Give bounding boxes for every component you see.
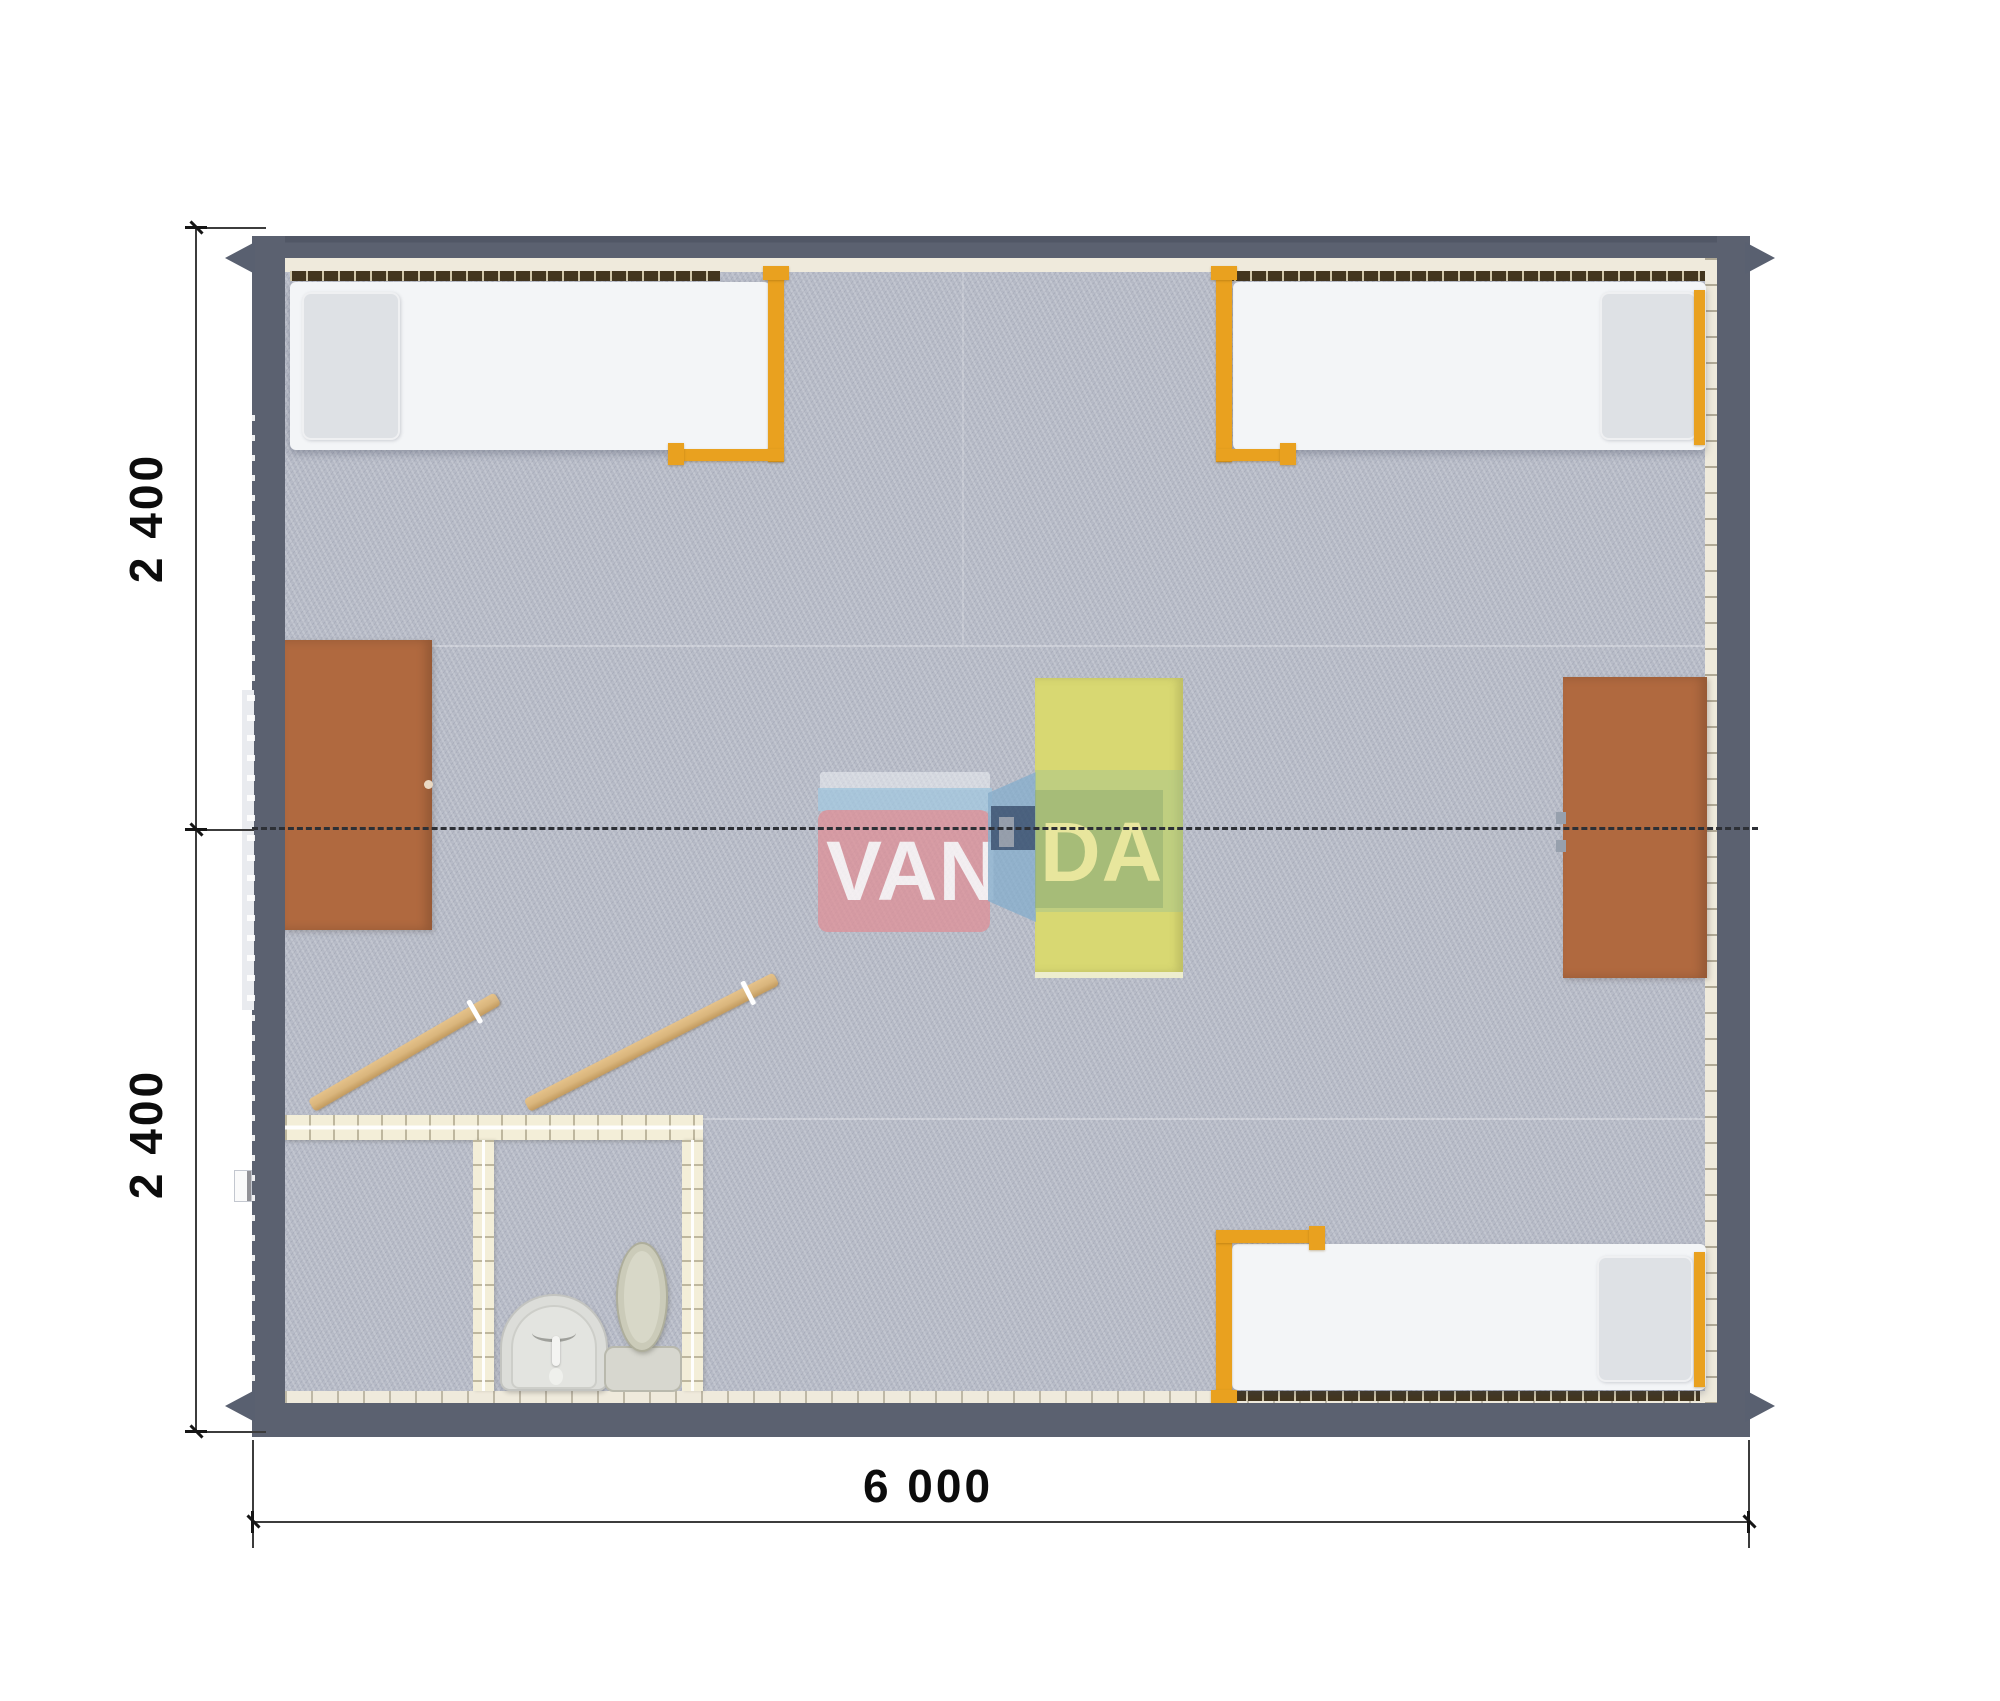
bed-frame-stub [668,443,684,465]
washbasin-faucet [552,1336,560,1366]
wall-left [252,236,285,1437]
wall-strip [1218,271,1705,281]
bathroom-wall-divider [473,1140,494,1391]
dimension-label-left-top: 2 400 [118,430,174,606]
bed-frame-bar [1216,1230,1232,1396]
corner-arrow-top-right [1745,242,1775,274]
desk-right-handle [1556,812,1566,824]
logo-navy-notch [999,817,1014,847]
bed-frame-stub [1309,1226,1325,1250]
logo-text-van: VAN [826,824,1016,918]
floor-plan-canvas: VAN DA 2 400 2 400 6 000 [0,0,2000,1701]
dimension-label-bottom: 6 000 [828,1460,1028,1512]
washbasin [500,1294,608,1391]
corner-arrow-top-left [225,242,255,274]
desk-right-handle [1556,840,1566,852]
wall-strip [290,271,720,281]
carpet-seam [962,272,964,645]
wall-strip [1230,1391,1700,1401]
logo-text-da: DA [1040,810,1160,894]
corner-arrow-bottom-left [225,1390,255,1422]
dimension-label-left-bottom: 2 400 [118,1046,174,1222]
bed-frame-foot [1216,449,1282,461]
exterior-vent-tab [234,1170,252,1202]
bathroom-wall-top [285,1115,703,1140]
module-joint-dashed-line [252,827,1758,830]
bed-frame-foot [672,449,784,461]
bed-frame-bar [1216,272,1232,462]
bed-pillow [1600,292,1697,440]
dimension-line-horizontal [252,1521,1750,1523]
bed-pillow [1597,1256,1693,1382]
carpet-seam [285,645,1705,647]
logo-blue-band [818,788,992,811]
exterior-dash-strip [247,415,255,1415]
wall-right [1717,236,1750,1437]
bed-frame-stub [1280,443,1296,465]
wall-top [252,236,1750,258]
carpet-seam [703,1118,1705,1120]
bed-frame-side [1694,290,1705,445]
bed-pillow [302,292,400,440]
washbasin-drain [549,1368,563,1385]
toilet-lid-inner [624,1251,660,1343]
desk-left [285,640,432,930]
toilet-tank [604,1346,682,1392]
bed-frame-bar [768,272,784,462]
bed-frame-cap [763,266,789,280]
bathroom-wall-right [682,1140,703,1391]
desk-left-knob [424,780,433,789]
bed-frame-cap [1211,1390,1237,1403]
wall-liner-top [285,258,1717,272]
wall-bottom [252,1403,1750,1437]
toilet-lid [616,1242,668,1352]
corner-arrow-bottom-right [1745,1390,1775,1422]
bed-frame-foot [1216,1230,1311,1243]
bed-frame-cap [1211,266,1237,280]
bed-frame-side [1694,1252,1705,1387]
